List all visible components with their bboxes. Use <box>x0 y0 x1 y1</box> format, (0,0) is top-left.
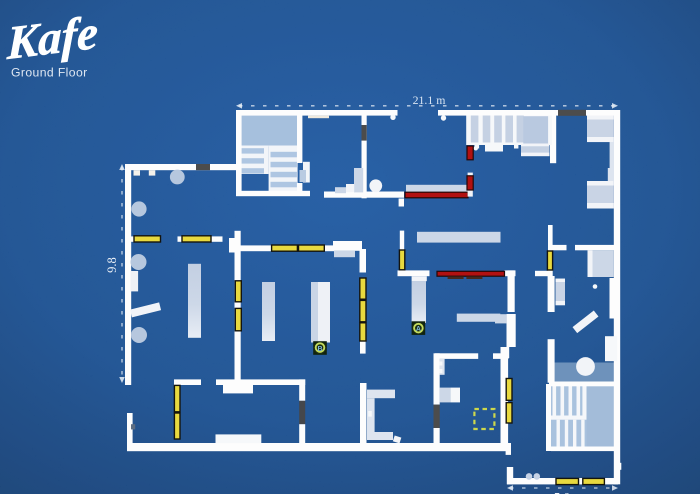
svg-text:A: A <box>416 326 421 333</box>
svg-text:5.0: 5.0 <box>554 490 570 494</box>
svg-text:21.1 m: 21.1 m <box>413 93 446 107</box>
svg-text:Ground Floor: Ground Floor <box>11 66 88 80</box>
svg-text:B: B <box>317 346 322 353</box>
svg-text:9.8: 9.8 <box>105 257 119 273</box>
